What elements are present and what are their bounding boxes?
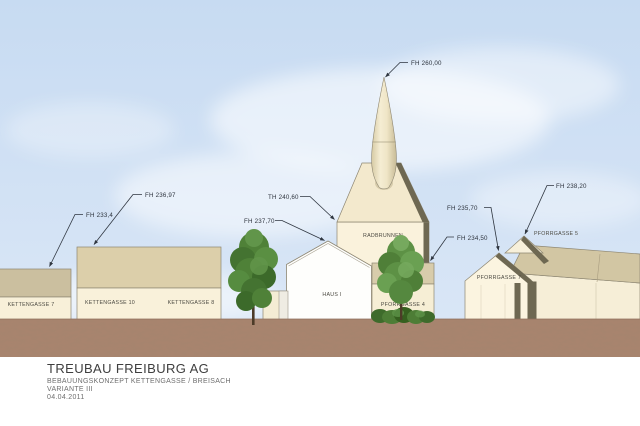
ground <box>0 319 640 357</box>
elevation-sheet: RADBRUNNEN KETTENGASSE 7 KETTENGASSE 10 … <box>0 0 640 426</box>
annotation-spire-fh: FH 260,00 <box>411 60 442 67</box>
title-company: TREUBAU FREIBURG AG <box>47 361 231 376</box>
annotation-radbrunnen-th: TH 240,60 <box>268 194 299 201</box>
title-date: 04.04.2011 <box>47 394 231 402</box>
annotation-kettengasse10-fh: FH 236,97 <box>145 192 176 199</box>
pforrgasse7-downpipe-strip <box>515 283 521 321</box>
pforrgasse5-label: PFORRGASSE 5 <box>534 231 578 237</box>
building-kettengasse-7: KETTENGASSE 7 <box>0 269 71 321</box>
annotation-kettengasse7-fh: FH 233,4 <box>86 212 113 219</box>
title-block: TREUBAU FREIBURG AG BEBAUUNGSKONZEPT KET… <box>47 361 231 401</box>
kettengasse7-roof-band <box>0 269 71 297</box>
kettengasse8-label: KETTENGASSE 8 <box>168 300 215 306</box>
haus1-annex <box>279 291 288 321</box>
cloud <box>5 102 175 158</box>
cloud <box>380 47 620 123</box>
haus1-label: HAUS I <box>322 292 341 298</box>
annotation-pforrgasse4-fh: FH 234,50 <box>457 235 488 242</box>
title-project: BEBAUUNGSKONZEPT KETTENGASSE / BREISACH <box>47 378 231 386</box>
bush-highlight <box>415 311 425 318</box>
kettengasse10-label: KETTENGASSE 10 <box>85 300 135 306</box>
annotation-pforrgasse7-fh: FH 235,70 <box>447 205 478 212</box>
pforrgasse7-corner-strip <box>528 282 537 322</box>
title-variant: VARIANTE III <box>47 386 231 394</box>
building-kettengasse-10-8: KETTENGASSE 10 KETTENGASSE 8 <box>77 247 221 321</box>
kettengasse7-wall <box>0 297 71 321</box>
kettengasse10-roof-band <box>77 247 221 288</box>
annotation-haus1-fh: FH 237,70 <box>244 218 275 225</box>
ground-texture <box>0 319 640 357</box>
annotation-pforrgasse5-fh: FH 238,20 <box>556 183 587 190</box>
kettengasse7-label: KETTENGASSE 7 <box>8 302 55 308</box>
pforrgasse7-label: PFORRGASSE 7 <box>477 275 521 281</box>
